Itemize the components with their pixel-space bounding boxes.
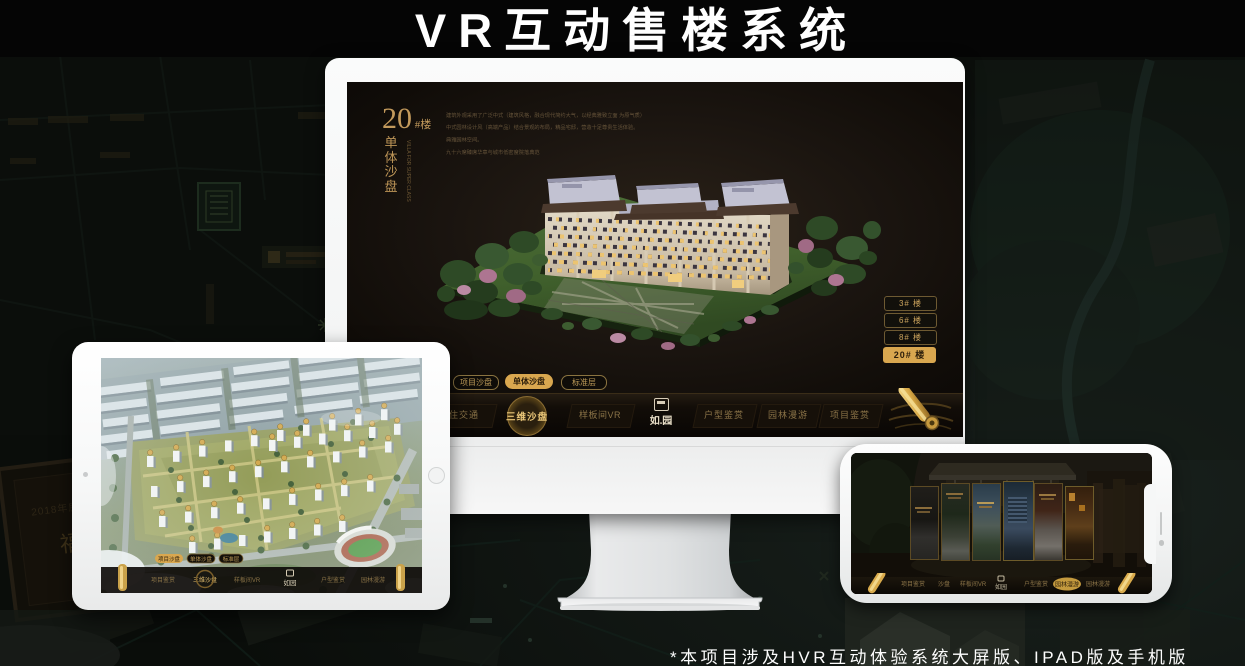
- svg-text:项目鉴赏: 项目鉴赏: [901, 580, 925, 588]
- svg-text:样板间VR: 样板间VR: [234, 576, 261, 584]
- svg-text:项目鉴赏: 项目鉴赏: [151, 576, 175, 584]
- svg-text:单体沙盘: 单体沙盘: [190, 555, 213, 563]
- svg-text:沙盘: 沙盘: [938, 580, 950, 588]
- svg-text:项目沙盘: 项目沙盘: [158, 555, 181, 563]
- svg-text:样板间VR: 样板间VR: [960, 580, 987, 588]
- svg-text:标准层: 标准层: [223, 555, 240, 563]
- svg-text:园林漫游: 园林漫游: [1055, 581, 1079, 589]
- svg-text:户型鉴赏: 户型鉴赏: [321, 576, 345, 584]
- svg-text:如园: 如园: [284, 578, 297, 587]
- svg-text:如园: 如园: [995, 583, 1007, 591]
- svg-text:园林漫游: 园林漫游: [1086, 580, 1110, 588]
- svg-text:园林漫游: 园林漫游: [361, 576, 385, 584]
- svg-text:户型鉴赏: 户型鉴赏: [1024, 580, 1048, 588]
